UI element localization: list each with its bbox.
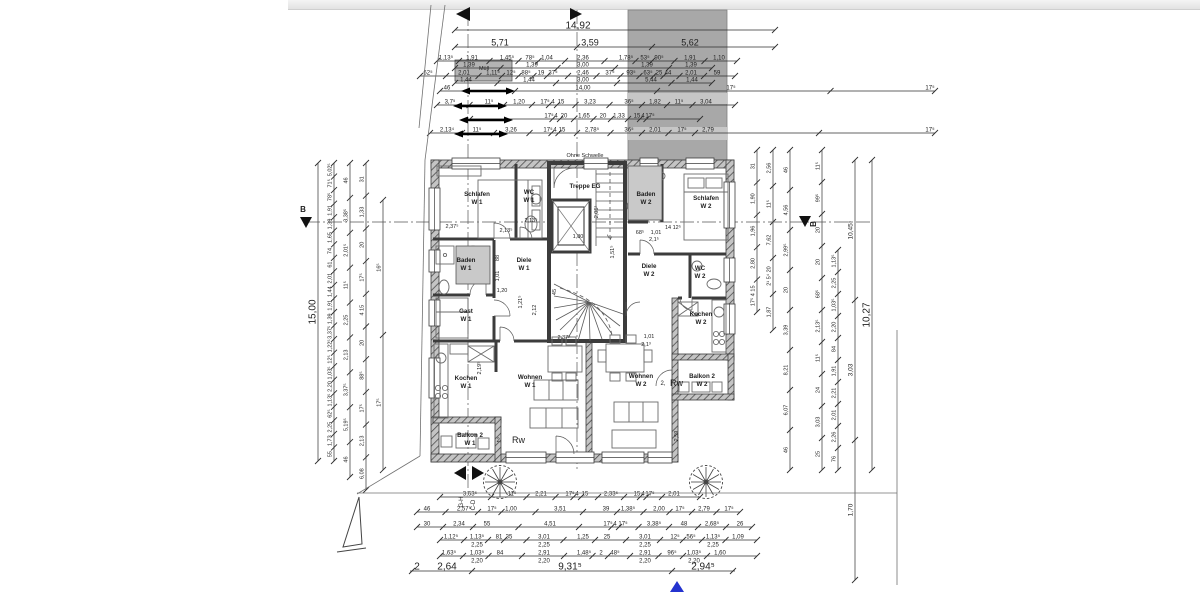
drain-icon: [443, 253, 446, 256]
inner-dim-label: 1,01: [651, 230, 662, 236]
dimension-chains: 14,925,713,595,621,13⁵1,911,45⁵78⁵1,042,…: [308, 21, 939, 584]
dim-label: 10,27: [862, 302, 873, 327]
chair: [598, 350, 606, 362]
dim-label: 20: [360, 340, 366, 346]
dim-label: 55: [328, 451, 334, 457]
dim-label: 48⁵: [610, 550, 620, 557]
rw-label: 2,: [660, 381, 665, 387]
inner-dim-label: 2,37⁵: [446, 223, 459, 230]
dim-label: 3,04: [700, 100, 712, 106]
room-label: Schlafen: [464, 191, 490, 198]
dim-label: 46: [784, 447, 790, 453]
rw-label: 2,: [496, 438, 501, 444]
room-label: Gast: [459, 308, 473, 315]
stair-walkline: [607, 172, 613, 240]
dim-label: 99⁵: [815, 194, 822, 202]
dim-label: 4 15: [360, 305, 366, 316]
dim-label: 2,25: [707, 543, 719, 549]
dim-label: 1,13⁵: [439, 55, 454, 62]
dim-label: 3,03: [848, 363, 855, 376]
dim-label: 2,94⁵: [691, 562, 715, 573]
room-label: W 1: [460, 383, 472, 390]
dim-label: 2,01: [649, 128, 661, 134]
door-arc: [680, 298, 692, 310]
inner-dim-label: 2,13⁵: [500, 227, 513, 234]
inner-dim-label: 1,20: [497, 288, 508, 294]
sink-icon: [714, 307, 724, 317]
survey-triangle-icon: [337, 497, 366, 552]
section-b-label: B: [300, 205, 306, 214]
dim-label: 36⁵: [624, 127, 634, 134]
door-arc: [500, 327, 514, 341]
room-label: Baden: [457, 257, 476, 264]
utility-arrow-icon: [454, 131, 463, 138]
dim-label: 3,7⁵: [445, 99, 456, 106]
dim-label: 17⁵: [677, 127, 687, 134]
room-label: Baden: [637, 191, 656, 198]
kitchen-counter: [450, 344, 468, 354]
wall: [728, 354, 734, 400]
dim-label: 1,13⁵: [831, 255, 838, 268]
room-label: W 1: [460, 316, 472, 323]
dim-label: 17⁵: [925, 127, 935, 134]
stove-icon: [713, 331, 718, 336]
dim-label: 1,90: [751, 193, 757, 204]
dim-label: 2,25: [328, 422, 334, 433]
ohne-schwelle-label: Ohne Schwelle: [567, 153, 604, 159]
room-label: Diele: [642, 263, 657, 270]
dim-label: 2,21: [832, 388, 838, 399]
inner-dim-label: 2,1³: [641, 342, 651, 348]
north-marker: [670, 581, 684, 592]
stair-tread: [589, 302, 612, 334]
dim-label: 78⁵: [525, 55, 535, 62]
dim-label: 46: [784, 167, 790, 173]
dim-label: 1,09: [732, 535, 744, 541]
dim-label: 3,00: [577, 78, 589, 84]
dim-label: 2,33⁵: [604, 491, 619, 498]
dim-label: 55: [484, 522, 491, 528]
dim-label: 1,03⁵: [470, 550, 485, 557]
wall: [672, 354, 734, 360]
dim-label: 2,21: [535, 492, 547, 498]
toilet-icon: [707, 279, 721, 289]
dim-label: 7,62: [767, 235, 773, 246]
section-arrow-cd-icon: [472, 466, 484, 480]
room-label: Kochen: [455, 375, 478, 382]
dim-label: 5,02⁵: [327, 163, 334, 176]
dim-label: 11⁵: [485, 99, 494, 106]
dim-label: 2,01: [685, 71, 697, 77]
dim-label: 2,79: [702, 128, 714, 134]
dim-label: 17⁵: [675, 506, 685, 513]
room-label: Schlafen: [693, 195, 719, 202]
inner-dim-label: 2,59: [674, 431, 680, 442]
inner-dim-label: 2,13⁵: [525, 217, 538, 224]
dim-label: 46: [344, 456, 350, 462]
dim-label: 17⁵: [925, 85, 935, 92]
dim-label: 2,91: [538, 551, 550, 557]
sofa: [612, 430, 656, 448]
dim-label: 59: [714, 71, 721, 77]
tree-trunk: [704, 480, 709, 485]
dim-label: 15: [582, 492, 589, 498]
dim-label: 1,03⁵: [327, 366, 334, 379]
inner-dim-label: 2,19⁵: [476, 362, 483, 375]
dim-label: 11⁵: [508, 491, 517, 498]
stair-tread: [589, 302, 602, 339]
room-label: W 1: [518, 265, 530, 272]
dim-label: 1,87: [767, 307, 773, 318]
room-label: WC: [524, 189, 535, 196]
dim-label: 3,37⁵: [343, 383, 350, 396]
dim-label: 8,21: [784, 365, 790, 376]
dim-label: 2,20: [639, 559, 651, 565]
room-label: W 2: [700, 203, 712, 210]
dim-label: 3,38⁵: [647, 521, 662, 528]
dim-label: 1,60: [714, 551, 726, 557]
dim-label: 24: [816, 387, 822, 393]
dim-label: 2,25: [639, 543, 651, 549]
dim-label: 2,56: [767, 163, 773, 174]
inner-dim-label: 88: [495, 255, 501, 261]
dim-label: 1,22⁵: [327, 339, 334, 352]
stair-tread: [589, 302, 590, 341]
utility-arrow-icon: [459, 117, 468, 124]
room-label: W 2: [696, 381, 708, 388]
dim-label: 1,44: [523, 78, 535, 84]
dim-label: 11⁵: [815, 162, 822, 170]
floor-plan-canvas: 14,925,713,595,621,13⁵1,911,45⁵78⁵1,042,…: [0, 0, 1200, 600]
dim-label: 1,13⁵: [327, 394, 334, 407]
dim-label: 4,51: [544, 522, 556, 528]
dim-label: 2,80: [751, 258, 757, 269]
dim-label: 1,12⁵: [444, 534, 459, 541]
dim-label: 53⁵: [640, 55, 650, 62]
tree-icon: [690, 466, 723, 499]
dim-label: 1,48⁵: [577, 550, 592, 557]
dim-label: 17⁵: [376, 398, 383, 406]
dim-label: 3,39: [784, 325, 790, 336]
dining-table: [606, 344, 644, 372]
room-label: Balkon 2: [457, 432, 483, 439]
dim-label: 2,68⁵: [705, 521, 720, 528]
dim-label: 5,62: [681, 38, 699, 48]
tree-trunk: [498, 480, 503, 485]
dim-label: 88⁵: [521, 70, 531, 77]
dim-label: 2,01: [328, 273, 334, 284]
dim-label: 30: [424, 522, 431, 528]
dim-label: 2,13⁵: [815, 320, 822, 333]
door-arc: [626, 302, 640, 316]
dim-label: 3,51: [554, 507, 566, 513]
inner-dim-label: 1,01: [495, 271, 501, 282]
dim-label: 1,10: [713, 56, 725, 62]
dim-label: 2,34: [453, 522, 465, 528]
dim-label: 3,37⁵: [327, 326, 334, 339]
dim-label: 1,13⁵: [470, 534, 485, 541]
chair: [626, 335, 636, 343]
dim-label: 2,01: [458, 71, 470, 77]
dim-label: 2,20: [538, 559, 550, 565]
dim-label: 3,38⁵: [343, 209, 350, 222]
stove-icon: [442, 393, 447, 398]
dim-label: 2,01: [668, 492, 680, 498]
dim-label: 1,03⁵: [687, 550, 702, 557]
dim-label: 11⁵: [473, 127, 482, 134]
dim-label: 1,00: [505, 507, 517, 513]
dim-label: 5,71: [491, 38, 509, 48]
dim-label: 2,20: [328, 381, 334, 392]
rw-label: Rw: [512, 435, 525, 445]
section-arrow-top-right-icon: [570, 8, 582, 20]
dim-label: 62⁵: [327, 409, 334, 417]
dim-label: 96⁵: [667, 550, 677, 557]
dim-label: 1,73: [328, 435, 334, 446]
inner-dim-label: 2,37⁵: [558, 334, 571, 341]
dim-label: 20: [784, 287, 790, 293]
dim-label: 3,01: [639, 535, 651, 541]
inner-dim-label: 14 12⁵: [665, 224, 681, 231]
dim-label: 2,25: [471, 543, 483, 549]
dim-label: 1,25: [577, 535, 589, 541]
dim-label: 88⁵: [359, 371, 366, 379]
dim-label: 2,00: [653, 507, 665, 513]
door-arc: [494, 300, 510, 316]
chair: [712, 382, 722, 392]
dim-label: 19: [538, 71, 545, 77]
dim-label: 1,39: [328, 313, 334, 324]
dim-label: 25: [816, 451, 822, 457]
dim-label: 1,39: [641, 63, 653, 69]
dim-label: 3,63⁵: [463, 491, 478, 498]
room-label: W 1: [523, 197, 535, 204]
dim-label: 84: [497, 551, 504, 557]
dim-label: 63⁵: [643, 70, 653, 77]
dim-label: 1,04: [541, 56, 553, 62]
dim-label: 71⁵: [327, 179, 334, 187]
room-label: Diele: [517, 257, 532, 264]
dim-label: 17⁵: [359, 273, 366, 281]
dim-label: 1,91: [832, 366, 838, 377]
rw-label: Rw: [670, 378, 683, 388]
dim-label: 1,65: [328, 232, 334, 243]
room-label: Wohnen: [518, 374, 543, 381]
dim-label: 93⁵: [626, 70, 636, 77]
dim-label: 12⁵: [670, 534, 680, 541]
room-label: Treppe EG: [570, 183, 601, 190]
section-b-left-icon: [300, 217, 312, 228]
room-label: Balkon 2: [689, 373, 715, 380]
dim-label: 12⁵: [327, 355, 334, 363]
dim-label: 1,03⁵: [831, 299, 838, 312]
dim-label: 37⁵: [605, 70, 615, 77]
utility-arrow-icon: [461, 88, 470, 95]
dim-label: 1,44: [686, 78, 698, 84]
inner-dim-label: 45: [552, 289, 558, 295]
section-cd-label: C-D: [471, 499, 477, 510]
dim-label: 1,78⁵: [619, 55, 634, 62]
dim-label: 1,44: [460, 78, 472, 84]
dim-label: 39: [603, 507, 610, 513]
room-label: W 1: [524, 382, 536, 389]
dim-label: 46: [444, 86, 451, 92]
page: 14,925,713,595,621,13⁵1,911,45⁵78⁵1,042,…: [0, 0, 1200, 600]
dim-label: 2,13: [360, 436, 366, 447]
dim-label: 56⁵: [686, 534, 696, 541]
room-label: W 2: [640, 199, 652, 206]
dim-label: 90⁵: [654, 55, 664, 62]
dim-label: 1,91: [328, 300, 334, 311]
dim-label: 2,01: [832, 410, 838, 421]
dim-label: 11⁵: [815, 354, 822, 362]
dim-label: 3,01: [538, 535, 550, 541]
dim-label: 5,19⁵: [343, 418, 350, 431]
dim-label: 2,64: [437, 562, 457, 573]
dim-label: 2,20: [832, 322, 838, 333]
dim-label: 2,46: [577, 71, 589, 77]
stove-icon: [719, 339, 724, 344]
inner-dim-label: 1,21⁵: [517, 296, 524, 309]
dim-label: 3,00: [577, 63, 589, 69]
inner-dim-label: 2,05¹: [594, 206, 600, 219]
dim-label: 1,39: [463, 63, 475, 69]
stove-icon: [713, 339, 718, 344]
room-label: W 1: [471, 199, 483, 206]
dim-label: 36⁵: [624, 99, 634, 106]
dim-label: 11⁵: [675, 99, 684, 106]
dim-label: 76: [832, 456, 838, 462]
dim-label: 2,25: [344, 315, 350, 326]
sofa: [534, 380, 578, 400]
dim-label: 1,91: [328, 205, 334, 216]
dim-label: 78⁵: [327, 193, 334, 201]
dim-label: 2,26: [832, 432, 838, 443]
dim-label: 2,13⁴: [440, 127, 455, 134]
dim-label: 17⁵: [359, 404, 366, 412]
dim-label: 14,92: [565, 21, 590, 32]
chair: [441, 436, 452, 447]
dim-label: 12⁵: [506, 70, 516, 77]
chair: [644, 350, 652, 362]
section-arrow-gh-icon: [454, 466, 466, 480]
stair-tread: [589, 302, 620, 326]
dim-label: 1,39: [526, 63, 538, 69]
dim-label: 2: [414, 562, 420, 573]
dim-label: 81: [496, 535, 503, 541]
dim-label: 5,44: [645, 78, 657, 84]
wall: [672, 394, 734, 400]
dim-label: 11⁵: [766, 200, 773, 208]
dim-label: 2,20: [471, 559, 483, 565]
dim-label: 1,38⁵: [621, 506, 636, 513]
door-arc: [556, 436, 574, 454]
dim-label: 15,00: [308, 299, 319, 324]
toilet-icon: [439, 280, 449, 294]
dim-label: 1,45⁵: [500, 55, 515, 62]
dim-label: 2,79: [698, 507, 710, 513]
neighbour-building-block: [628, 10, 727, 160]
stove-icon: [442, 385, 447, 390]
room-label: W 2: [643, 271, 655, 278]
dim-label: 48: [681, 522, 688, 528]
wall: [586, 341, 592, 454]
dim-label: 46: [424, 507, 431, 513]
dim-label: 26: [737, 522, 744, 528]
dim-label: 2,13: [344, 350, 350, 361]
dim-label: 15: [558, 100, 565, 106]
dim-label: 4,56: [784, 205, 790, 216]
pillow: [688, 178, 704, 188]
dim-label: 1,91: [684, 56, 696, 62]
dim-label: 2: [599, 551, 603, 557]
dim-label: 17⁵: [724, 506, 734, 513]
dim-label: 1,82: [649, 100, 661, 106]
dim-label: 68⁵: [815, 290, 822, 298]
dim-label: 31: [360, 176, 366, 182]
dim-label: 10,45⁵: [848, 220, 855, 239]
dim-label: 6,08: [360, 468, 366, 479]
utility-arrow-icon: [506, 88, 515, 95]
dim-label: 3,03: [816, 417, 822, 428]
section-b-label: B: [809, 221, 818, 227]
room-label: W 1: [464, 440, 476, 447]
room-label: Wohnen: [629, 373, 654, 380]
dim-label: 84: [832, 346, 838, 352]
dim-label: 1,44: [328, 286, 334, 297]
dim-label: 2,25: [832, 278, 838, 289]
dim-label: 20: [816, 259, 822, 265]
dim-label: 1,33: [613, 114, 625, 120]
dim-label: 74: [328, 248, 334, 254]
section-gh-label: G-H: [459, 497, 465, 508]
dim-label: 1,96: [751, 226, 757, 237]
inner-dim-label: 1,80: [573, 234, 584, 240]
dim-label: 61: [328, 262, 334, 268]
dim-label: 1,65: [578, 114, 590, 120]
dim-label: 16⁵: [376, 263, 383, 271]
dim-label: 3,26: [505, 128, 517, 134]
dim-label: 20: [360, 242, 366, 248]
dim-label: 9,31⁵: [558, 562, 582, 573]
room-label: W 2: [695, 319, 707, 326]
dim-label: 20: [600, 114, 607, 120]
dim-label: 17⁵: [726, 85, 736, 92]
dim-label: 2,99⁵: [783, 244, 790, 257]
dim-label: 25: [604, 535, 611, 541]
chair: [610, 373, 620, 381]
dim-label: 1,70: [848, 503, 855, 516]
room-label: W 2: [694, 273, 706, 280]
room-label: Kochen: [690, 311, 713, 318]
room-label: WC: [695, 265, 706, 272]
dim-label: 15: [559, 128, 566, 134]
dim-label: 2,78⁵: [585, 127, 600, 134]
dim-label: 17⁵: [540, 99, 550, 106]
dim-label: 20: [561, 114, 568, 120]
inner-dim-label: 2,12: [532, 305, 538, 316]
dim-label: 1,63⁵: [442, 550, 457, 557]
dim-label: 31: [751, 163, 757, 169]
inner-dim-label: 1,51⁵: [609, 246, 616, 259]
chair: [478, 438, 489, 449]
dim-label: 6,07: [784, 405, 790, 416]
dim-label: 1,13⁵: [706, 534, 721, 541]
dim-label: 1,33: [360, 207, 366, 218]
dim-label: 1,39: [685, 63, 697, 69]
dim-label: 3,23: [584, 100, 596, 106]
room-label: W 2: [635, 381, 647, 388]
